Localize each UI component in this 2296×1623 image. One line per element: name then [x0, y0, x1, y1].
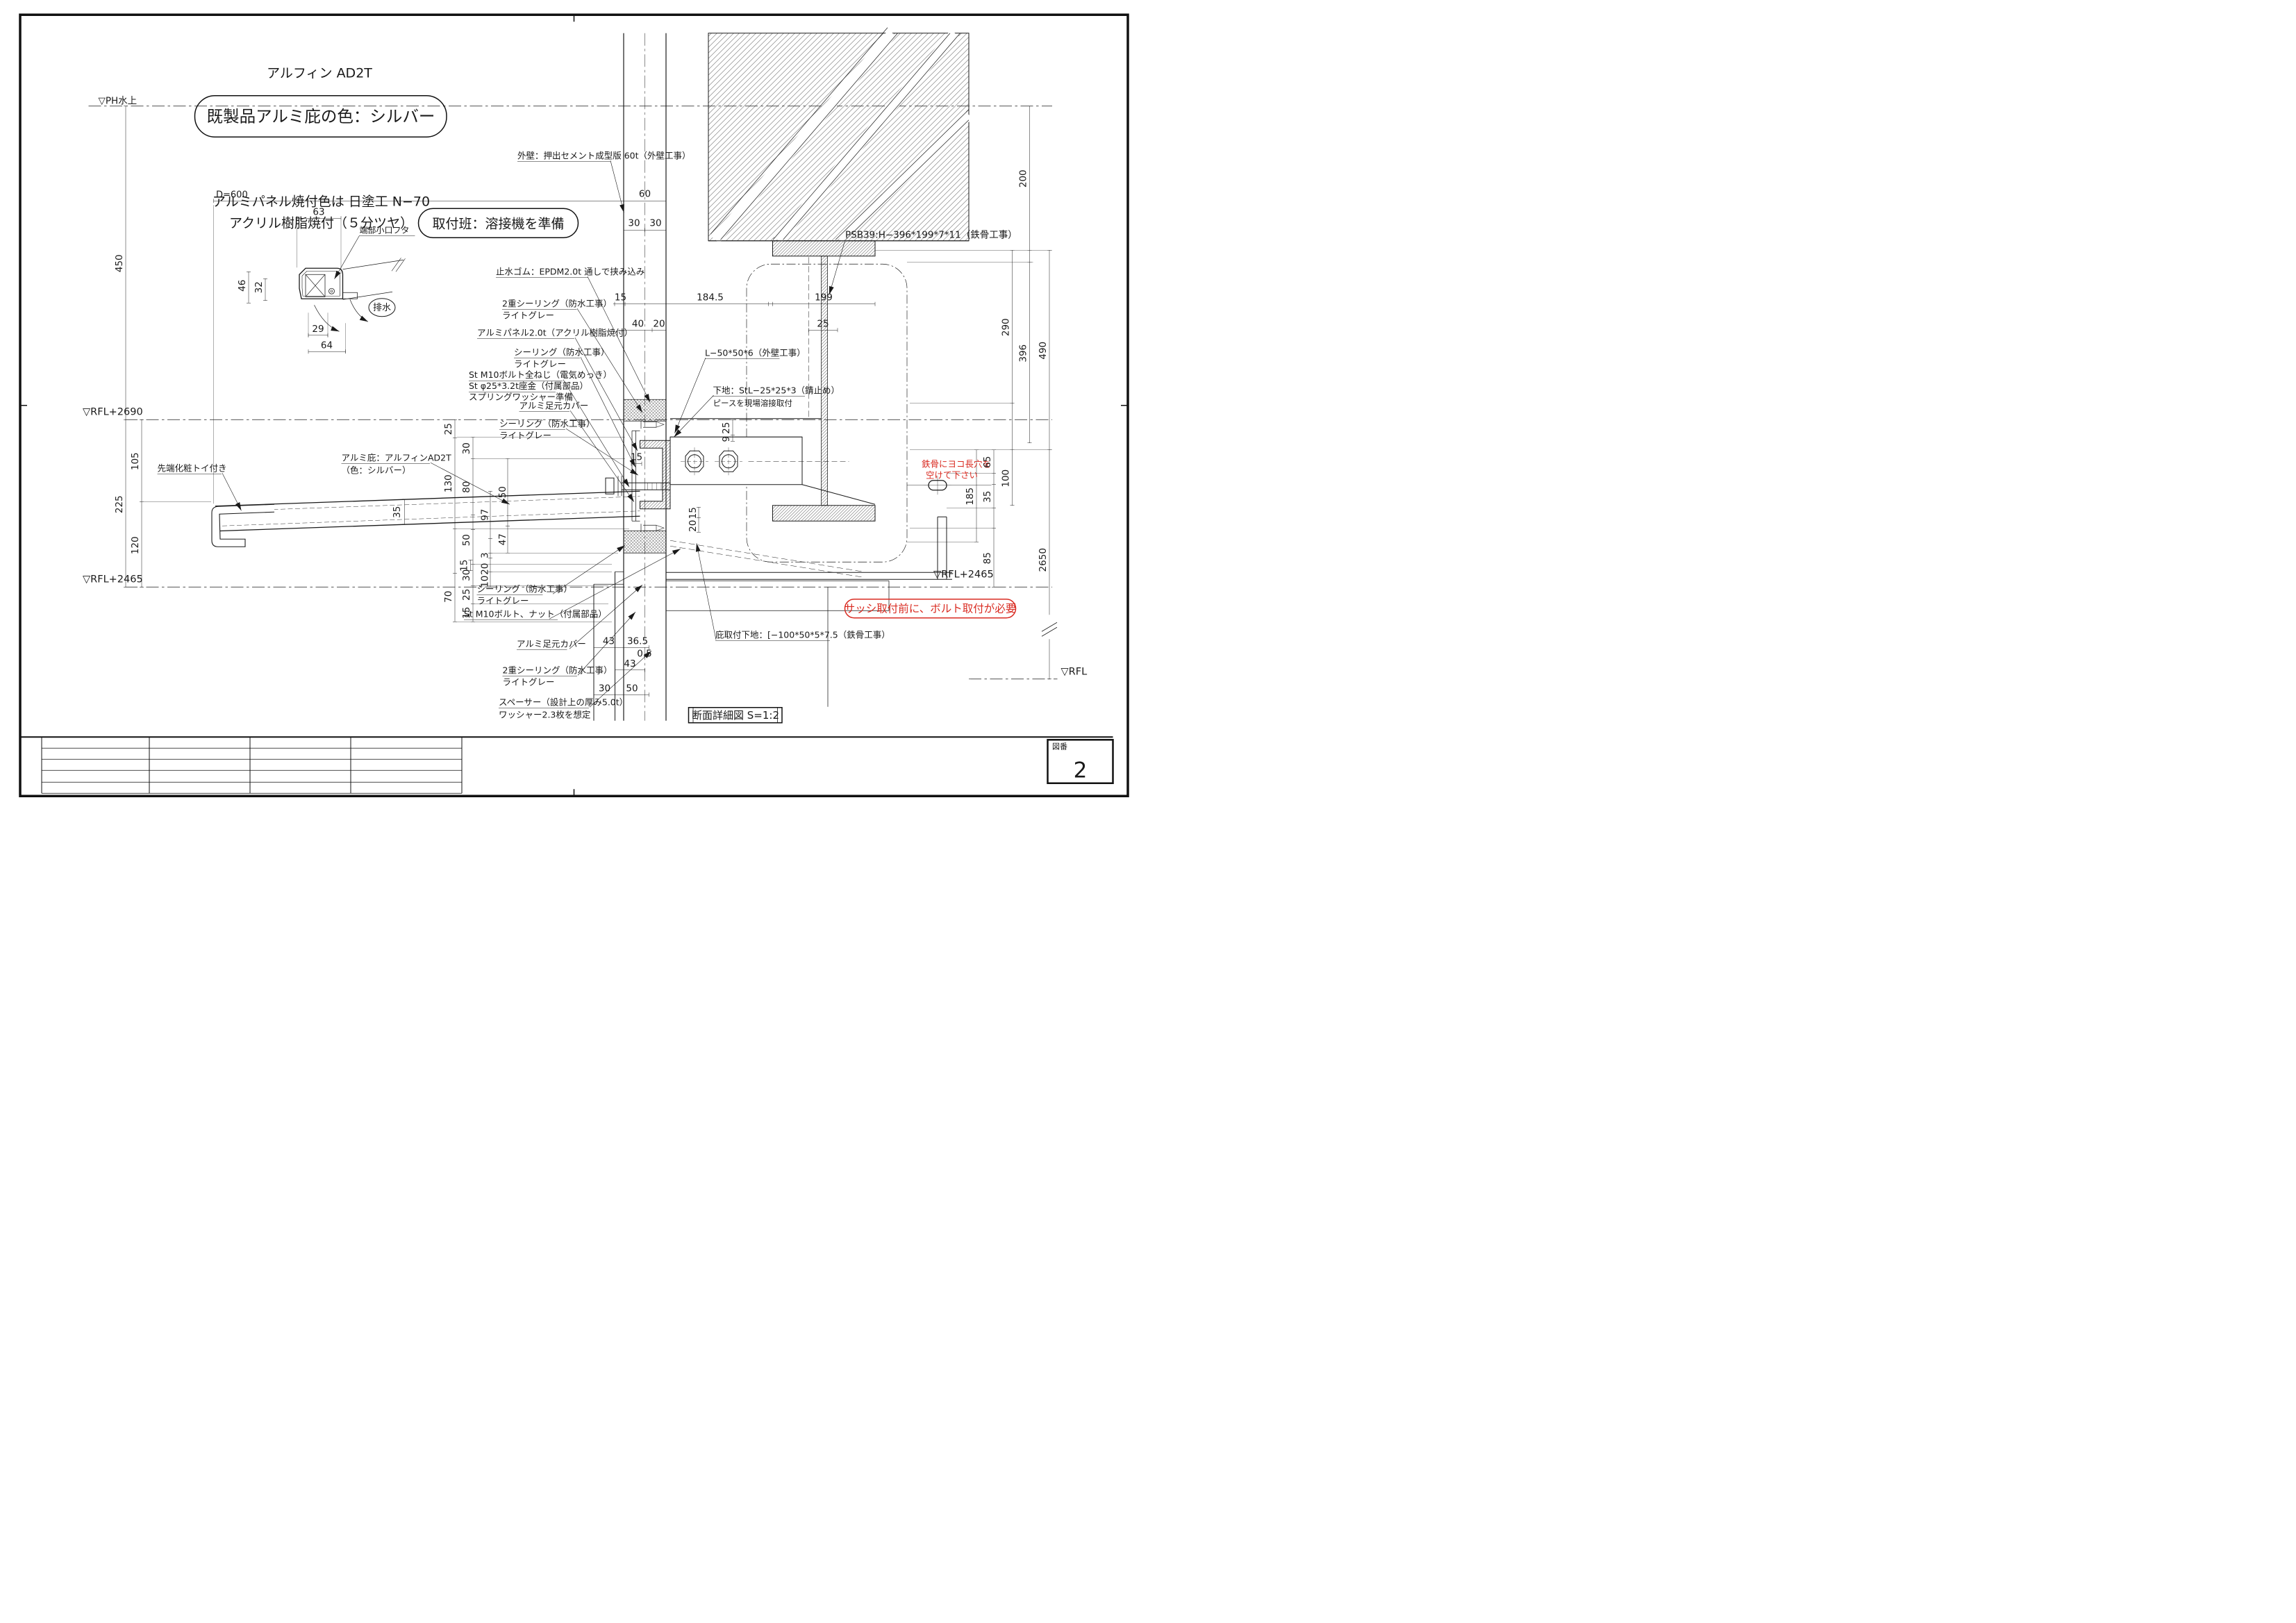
annotation-text: 鉄骨にヨコ長穴を: [922, 458, 991, 469]
color-note-text: 既製品アルミ庇の色：シルバー: [207, 106, 435, 126]
dim-text: 490: [1038, 342, 1049, 360]
tip-detail: [299, 258, 406, 331]
annotation-text: St φ25*3.2t座金（付属部品）: [469, 381, 588, 391]
annotation-text: ▽RFL: [1061, 666, 1088, 677]
dim-text: 40: [632, 318, 644, 329]
dim-text: 25: [817, 318, 829, 329]
annotation-text: ライトグレー: [503, 676, 555, 687]
annotation-text: 止水ゴム：EPDM2.0t 通しで挟み込み: [496, 266, 644, 276]
dim-text: 64: [321, 340, 333, 351]
dim-text: 15: [631, 451, 642, 463]
dim-text: 35: [982, 491, 993, 503]
annotation-text: ワッシャー2.3枚を想定: [499, 709, 590, 719]
annotation-text: 庇取付下地：[−100*50*5*7.5（鉄骨工事）: [715, 629, 890, 640]
dim-text: 50: [497, 486, 508, 498]
dim-text: 20: [653, 318, 665, 329]
annotation-text: アルミ庇：アルフィンAD2T: [342, 452, 452, 463]
dim-text: 450: [114, 254, 125, 272]
dim-text: 396: [1018, 344, 1029, 363]
dim-text: 199: [815, 292, 833, 303]
annotation-text: ▽PH水上: [99, 95, 138, 106]
dim-text: 32: [253, 281, 265, 293]
dim-text: 30: [599, 683, 610, 694]
dim-text: 97: [480, 509, 491, 521]
dim-text: 20: [480, 563, 491, 575]
dim-text: 130: [443, 474, 454, 492]
annotation-text: St M10ボルト全ねじ（電気めっき）: [469, 369, 612, 380]
dim-text: 25: [461, 589, 472, 601]
dim-text: 105: [130, 452, 141, 470]
dim-text: 46: [237, 280, 248, 292]
annotation-text: アルミ足元カバー: [519, 400, 589, 410]
dim-text: 29: [312, 324, 324, 335]
channel-bracket: [640, 440, 671, 509]
annotation-text: ライトグレー: [499, 430, 551, 440]
dim-text: 43: [603, 635, 615, 647]
annotation-text: 外壁：押出セメント成型版 60t（外壁工事）: [517, 150, 691, 160]
foot-cover-profile: [632, 431, 640, 521]
dim-text: 15: [461, 607, 472, 619]
title-block: [21, 737, 1113, 793]
annotation-text: シーリング（防水工事）: [499, 418, 595, 428]
dim-text: 65: [982, 456, 993, 468]
red-warning-text: サッシ取付前に、ボルト取付が必要: [845, 602, 1017, 615]
dim-text: 63: [313, 206, 324, 217]
dim-text: 225: [114, 495, 125, 513]
dim-text: 85: [982, 552, 993, 564]
annotation-text: シーリング（防水工事）: [514, 347, 610, 357]
view-title-text: 断面詳細図 S=1:2: [692, 709, 779, 722]
h-beam-bottom-flange: [773, 506, 876, 522]
dim-text: 25: [721, 422, 732, 434]
dim-text: 30: [628, 217, 640, 228]
annotation-text: ライトグレー: [514, 358, 566, 369]
annotation-text: 空けて下さい: [926, 469, 978, 480]
annotation-text: ▽RFL+2465: [83, 574, 143, 585]
dim-text: 70: [443, 591, 454, 603]
team-note-text: 取付班：溶接機を準備: [432, 216, 564, 231]
cad-canvas: アルフィン AD2T 既製品アルミ庇の色：シルバー アルミパネル焼付色は 日塗工…: [0, 0, 1148, 812]
tapping-screw-top: [641, 420, 664, 428]
annotation-text: 下地：StL−25*25*3（錆止め）: [713, 385, 840, 395]
product-title: アルフィン AD2T: [267, 65, 372, 81]
dim-text: 36.5: [627, 635, 648, 647]
sheet-label: 図番: [1052, 742, 1067, 751]
annotation-text: シーリング（防水工事）: [477, 583, 573, 594]
dim-text: 47: [497, 533, 508, 545]
dim-text: 10: [480, 576, 491, 588]
dim-text: 30: [461, 442, 472, 454]
annotation-text: スペーサー（設計上の厚み5.0t）: [499, 697, 628, 707]
dim-text: 20: [688, 520, 699, 532]
annotation-text: PSB39:H−396*199*7*11（鉄骨工事）: [845, 229, 1017, 240]
drawing-sheet: アルフィン AD2T 既製品アルミ庇の色：シルバー アルミパネル焼付色は 日塗工…: [0, 0, 1148, 812]
dim-text: 15: [688, 507, 699, 519]
slab-hatch: [708, 28, 969, 241]
dim-text: 35: [392, 506, 403, 518]
annotation-text: L−50*50*6（外壁工事）: [705, 347, 806, 358]
dim-text: 15: [459, 560, 470, 572]
wall-joint-seal-top: [624, 399, 666, 421]
dim-text: 60: [639, 188, 651, 199]
annotation-text: ライトグレー: [502, 310, 554, 320]
dim-text: 50: [626, 683, 638, 694]
annotation-text: ▽RFL+2690: [83, 406, 143, 417]
exterior-wall: [624, 33, 666, 721]
drain-arrow-2: [350, 299, 368, 322]
dim-text: 43: [624, 658, 635, 669]
annotation-text: （色：シルバー）: [342, 465, 411, 475]
canopy-panel: [212, 491, 640, 547]
annotation-text: 先端化粧トイ付き: [158, 463, 227, 473]
dim-text: 80: [461, 481, 472, 493]
annotation-text: 2重シーリング（防水工事）: [502, 298, 612, 308]
h-beam-top-flange: [773, 241, 876, 256]
dim-text: 185: [965, 488, 976, 506]
wall-joint-seal-bottom: [624, 531, 666, 553]
annotation-text: アルミパネル2.0t（アクリル樹脂焼付）: [477, 327, 633, 338]
annotation-text: D=600: [216, 190, 248, 200]
annotation-text: ピースを現場溶接取付: [713, 398, 792, 408]
dim-text: 50: [461, 534, 472, 546]
annotation-text: アルミ足元カバー: [517, 638, 586, 649]
tip-drip-channel: [212, 504, 274, 547]
annotation-text: ライトグレー: [477, 595, 529, 606]
dim-text: 25: [443, 423, 454, 435]
dim-text: 120: [130, 536, 141, 554]
annotation-text: 2重シーリング（防水工事）: [503, 665, 613, 675]
annotation-text: 排水: [373, 303, 391, 313]
dim-text: 3: [480, 552, 491, 558]
dim-text: 290: [1001, 318, 1012, 336]
dim-text: 100: [1001, 469, 1012, 488]
dim-text: 184.5: [697, 292, 724, 303]
dim-text: 2650: [1038, 548, 1049, 572]
sheet-number: 2: [1074, 758, 1088, 783]
dim-text: 30: [649, 217, 661, 228]
dim-text: 0.5: [637, 648, 651, 659]
annotation-text: St M10ボルト、ナット（付属部品）: [464, 608, 607, 619]
through-bolt: [606, 476, 670, 496]
annotation-text: 端部小口フタ: [360, 224, 410, 235]
annotation-text: ▽RFL+2465: [933, 569, 994, 580]
dim-text: 200: [1018, 169, 1029, 188]
dim-text: 9: [721, 436, 732, 442]
dim-text: 15: [615, 292, 626, 303]
